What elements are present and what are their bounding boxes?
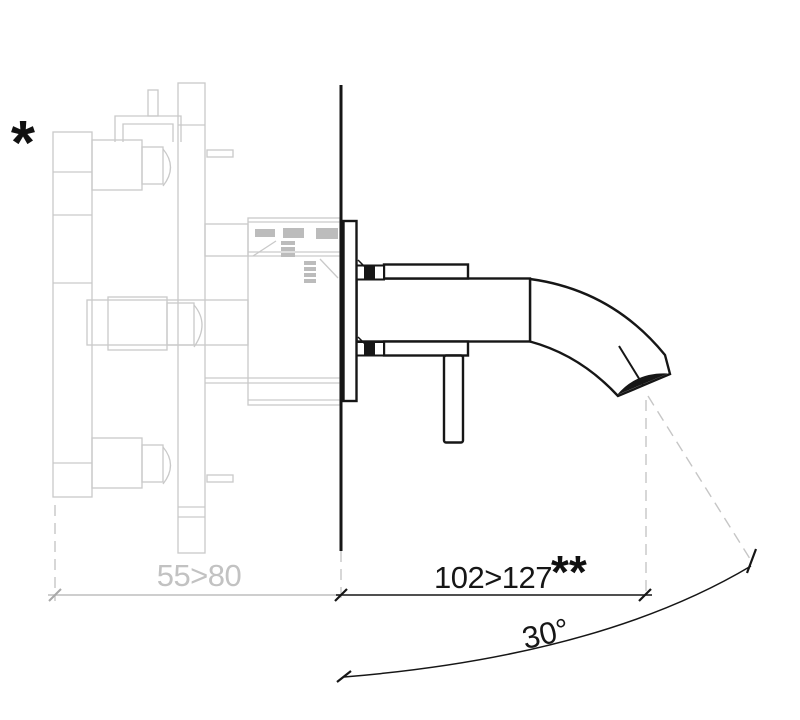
valve-housing-box bbox=[205, 218, 340, 405]
wall-depth-dimension-label: 55>80 bbox=[157, 558, 242, 593]
spout-assembly bbox=[344, 221, 671, 443]
upper-wall-connector bbox=[357, 260, 385, 280]
concealed-valve-body bbox=[53, 83, 340, 553]
lower-flange bbox=[384, 342, 468, 356]
asterisk-note: * bbox=[11, 109, 36, 178]
technical-drawing: 55>80 102>127 ** 30° * bbox=[0, 0, 800, 720]
double-asterisk-note: ** bbox=[551, 546, 587, 598]
upper-flange bbox=[384, 265, 468, 279]
top-bracket bbox=[115, 90, 181, 142]
technical-drawing-page: 55>80 102>127 ** 30° * bbox=[0, 0, 800, 720]
spout-body-tube bbox=[357, 279, 531, 342]
wall-escutcheon-plate bbox=[344, 221, 357, 401]
inlet-cartridge-bottom bbox=[92, 438, 233, 488]
inlet-cartridge-top bbox=[92, 140, 233, 190]
handle-lever bbox=[444, 356, 463, 443]
outlet-cylinder-middle bbox=[87, 297, 248, 350]
gray-dimension-group: 55>80 bbox=[48, 396, 752, 601]
black-dimension-group: 102>127 ** 30° bbox=[335, 546, 756, 682]
valve-rear-column bbox=[53, 132, 92, 497]
spout-length-dimension-label: 102>127 bbox=[434, 560, 552, 595]
angle-dimension-label: 30° bbox=[519, 611, 573, 656]
